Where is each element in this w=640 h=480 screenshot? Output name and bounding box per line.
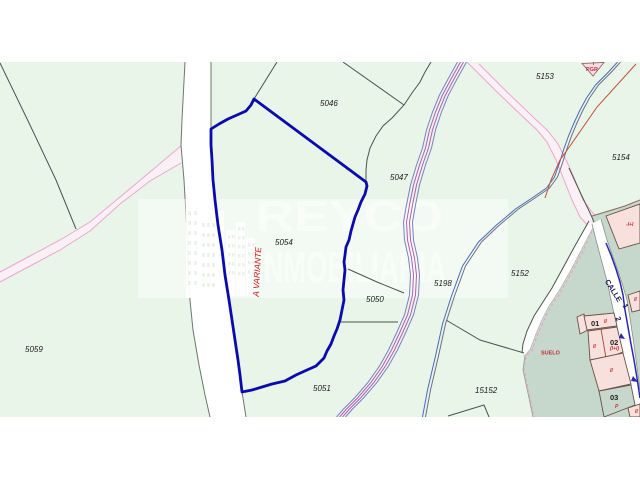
svg-text:PGR: PGR [586,67,598,73]
svg-text:5051: 5051 [313,384,331,393]
svg-text:-I+I: -I+I [626,222,634,228]
svg-text:5152: 5152 [511,269,529,278]
svg-text:03: 03 [610,393,618,402]
svg-text:5198: 5198 [434,279,452,288]
svg-text:5054: 5054 [275,238,293,247]
svg-text:5154: 5154 [612,153,630,162]
svg-text:(I+I): (I+I) [610,346,619,352]
svg-text:SUELO: SUELO [541,351,561,357]
svg-text:15152: 15152 [475,386,498,395]
svg-text:5046: 5046 [320,99,338,108]
svg-text:INMOBILIARIA: INMOBILIARIA [256,243,446,292]
svg-text:5153: 5153 [536,72,554,81]
svg-text:5059: 5059 [25,345,43,354]
svg-text:5050: 5050 [366,295,384,304]
svg-text:5047: 5047 [390,173,408,182]
svg-text:01: 01 [591,319,599,328]
